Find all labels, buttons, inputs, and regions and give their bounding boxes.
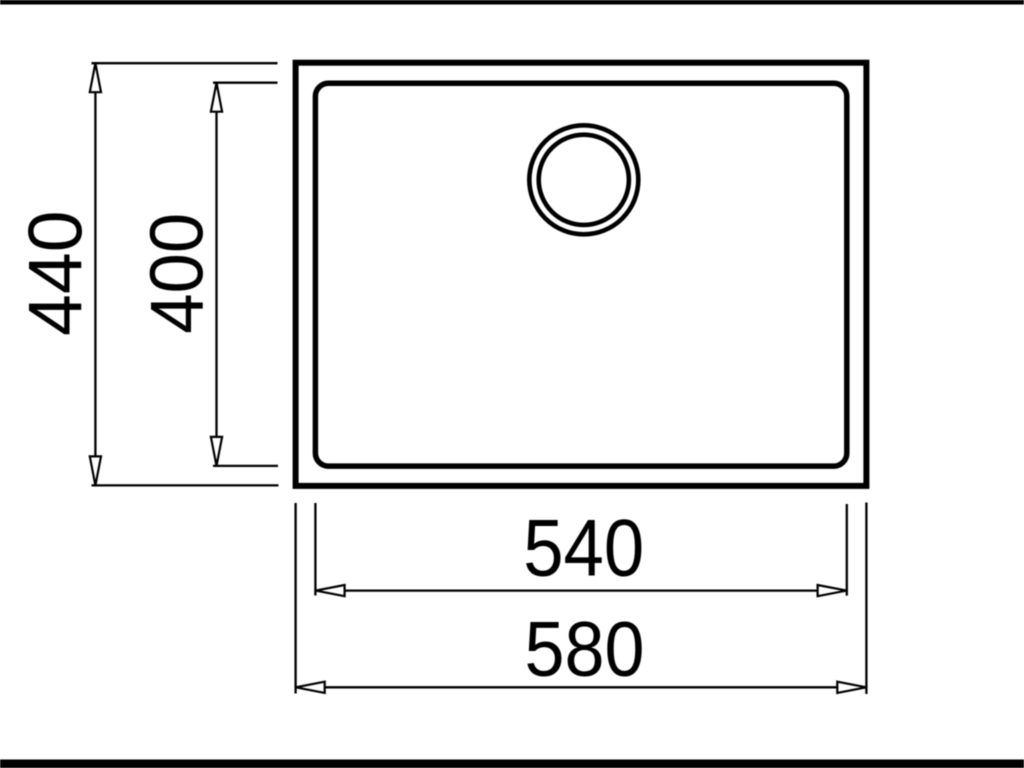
svg-text:400: 400 [135,213,219,334]
svg-text:540: 540 [523,504,644,594]
svg-text:580: 580 [525,604,645,692]
svg-text:440: 440 [14,210,99,336]
